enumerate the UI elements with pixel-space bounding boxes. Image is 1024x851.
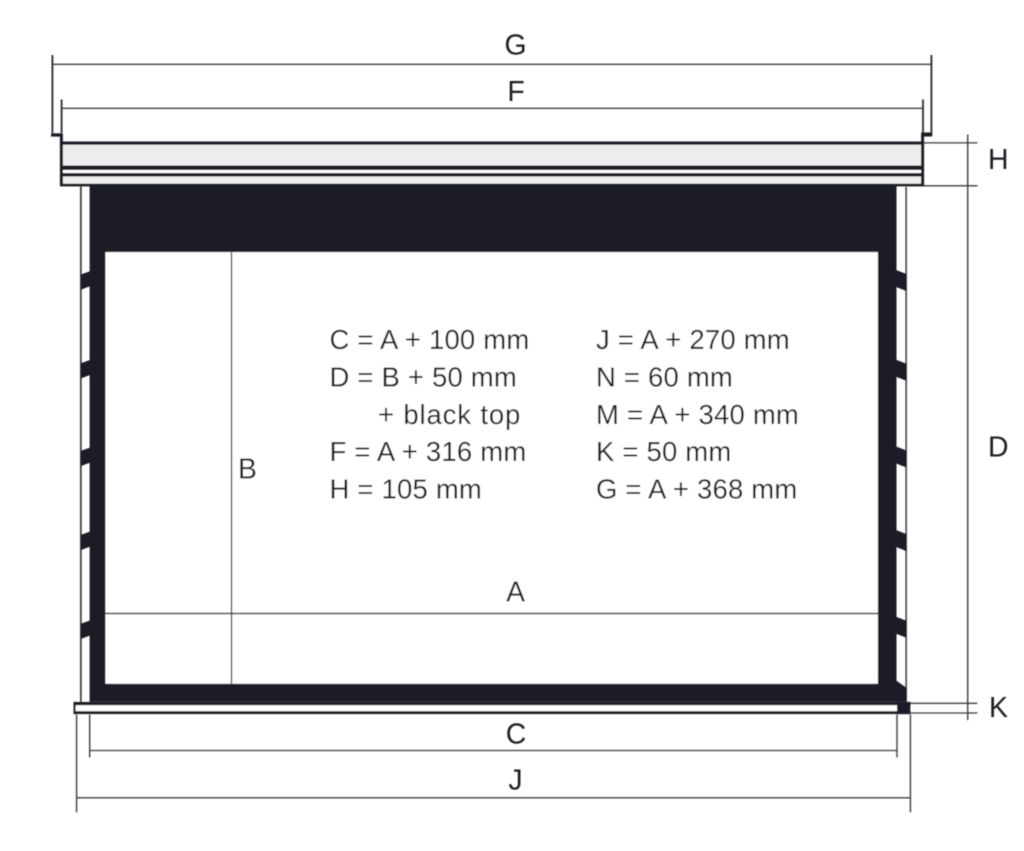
svg-text:C: C xyxy=(506,719,527,751)
svg-text:A: A xyxy=(506,577,525,609)
svg-text:F = A + 316 mm: F = A + 316 mm xyxy=(330,436,527,467)
svg-text:G: G xyxy=(504,30,526,62)
svg-text:N = 60 mm: N = 60 mm xyxy=(596,361,733,392)
svg-text:J: J xyxy=(508,765,522,797)
svg-text:H: H xyxy=(988,144,1009,176)
svg-text:B: B xyxy=(238,454,257,486)
svg-text:H = 105 mm: H = 105 mm xyxy=(330,474,483,505)
svg-text:C = A + 100 mm: C = A + 100 mm xyxy=(330,324,530,355)
svg-text:K = 50 mm: K = 50 mm xyxy=(596,436,732,467)
svg-text:+ black top: + black top xyxy=(378,399,521,430)
svg-text:G = A + 368 mm: G = A + 368 mm xyxy=(596,474,798,505)
svg-text:D = B + 50 mm: D = B + 50 mm xyxy=(330,361,518,392)
svg-text:J = A + 270 mm: J = A + 270 mm xyxy=(596,324,790,355)
svg-text:F: F xyxy=(507,76,524,108)
svg-text:D: D xyxy=(988,432,1009,464)
svg-text:M = A + 340 mm: M = A + 340 mm xyxy=(596,399,799,430)
svg-text:K: K xyxy=(989,692,1008,724)
